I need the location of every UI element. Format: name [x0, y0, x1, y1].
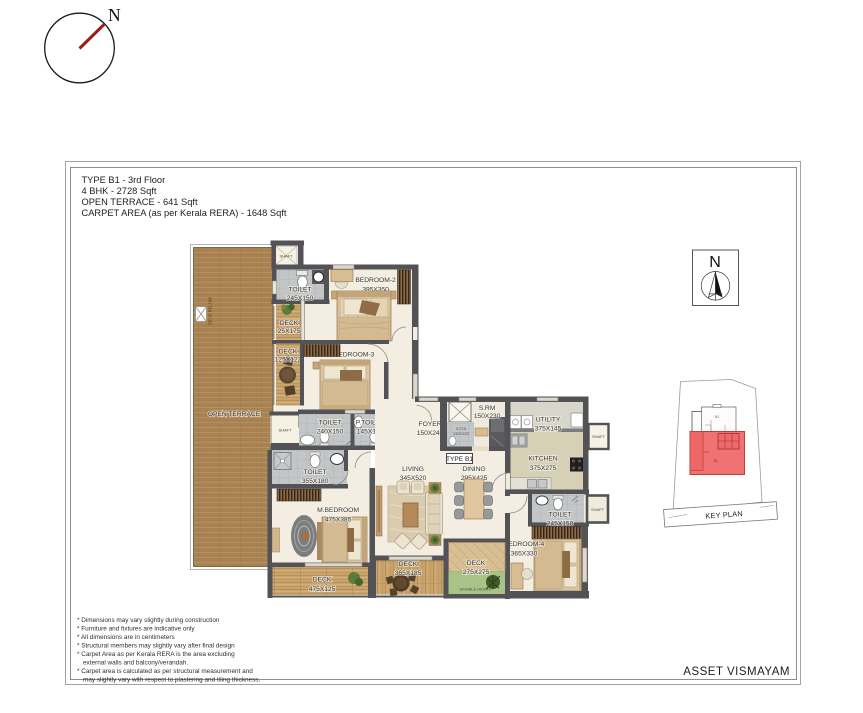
svg-text:DECK: DECK [467, 560, 486, 567]
svg-text:OPEN TERRACE - 641 Sqft: OPEN TERRACE - 641 Sqft [82, 197, 198, 207]
svg-text:SHAFT: SHAFT [592, 434, 606, 439]
svg-text:365X330: 365X330 [511, 551, 538, 558]
svg-text:may slightly vary with respect: may slightly vary with respect to plaste… [83, 677, 260, 684]
svg-text:* All dimensions are in centim: * All dimensions are in centimeters [77, 634, 175, 641]
svg-text:CARPET AREA (as per Kerala RER: CARPET AREA (as per Kerala RERA) - 1648 … [82, 208, 287, 218]
svg-text:TOILET: TOILET [548, 512, 571, 519]
svg-text:B1: B1 [714, 459, 718, 463]
svg-text:LIVING: LIVING [402, 466, 424, 473]
svg-text:N1: N1 [715, 415, 719, 419]
svg-text:DECK: DECK [279, 349, 298, 356]
svg-text:TYPE B1 - 3rd Floor: TYPE B1 - 3rd Floor [82, 175, 166, 185]
svg-text:TOILET: TOILET [303, 469, 326, 476]
svg-text:240X150: 240X150 [317, 429, 344, 436]
svg-text:DINING: DINING [462, 466, 485, 473]
svg-text:FOYER: FOYER [419, 421, 442, 428]
svg-text:275X275: 275X275 [463, 569, 490, 576]
svg-text:365X185: 365X185 [395, 570, 422, 577]
svg-text:DECK: DECK [313, 577, 332, 584]
svg-text:25X175: 25X175 [278, 328, 301, 335]
svg-text:SHAFT: SHAFT [279, 254, 293, 259]
svg-text:N: N [709, 254, 721, 271]
svg-text:475X385: 475X385 [325, 517, 352, 524]
svg-text:N: N [108, 5, 121, 25]
svg-text:TOILET: TOILET [288, 287, 311, 294]
svg-text:TYPE B1: TYPE B1 [446, 456, 473, 463]
svg-text:S.RM: S.RM [479, 405, 496, 412]
svg-text:4 BHK - 2728 Sqft: 4 BHK - 2728 Sqft [82, 186, 157, 196]
svg-text:125X122: 125X122 [275, 357, 302, 364]
svg-text:475X125: 475X125 [309, 586, 336, 593]
svg-text:M.BEDROOM: M.BEDROOM [317, 507, 359, 514]
svg-text:* Carpet Area as per Kerala RE: * Carpet Area as per Kerala RERA is the … [77, 651, 235, 658]
svg-text:355X180: 355X180 [302, 478, 329, 485]
svg-text:DECK BELOW: DECK BELOW [208, 297, 213, 325]
svg-text:245X150: 245X150 [287, 295, 314, 302]
svg-text:TOILET: TOILET [318, 420, 341, 427]
svg-text:* Furniture and fixtures are i: * Furniture and fixtures are indicative … [77, 626, 195, 633]
svg-text:* Carpet area is calculated as: * Carpet area is calculated as per struc… [77, 668, 253, 675]
svg-text:DECK: DECK [399, 561, 418, 568]
svg-text:150X230: 150X230 [474, 413, 501, 420]
svg-text:* Dimensions may vary slightly: * Dimensions may vary slightly during co… [77, 617, 220, 624]
svg-text:ASSET VISMAYAM: ASSET VISMAYAM [683, 666, 790, 678]
svg-text:DECK: DECK [280, 320, 299, 327]
svg-text:* Structural members may sligh: * Structural members may slightly vary a… [77, 643, 235, 650]
svg-text:375X145: 375X145 [535, 426, 562, 433]
svg-text:BEDROOM-2: BEDROOM-2 [355, 277, 396, 284]
svg-text:KITCHEN: KITCHEN [528, 456, 557, 463]
svg-text:OPEN TERRACE: OPEN TERRACE [208, 411, 261, 418]
svg-text:external walls and balcony/ver: external walls and balcony/verandah. [83, 660, 188, 667]
svg-text:SHAFT: SHAFT [278, 428, 292, 433]
svg-text:110X120: 110X120 [453, 431, 469, 436]
svg-text:UTILITY: UTILITY [536, 417, 561, 424]
svg-text:375X275: 375X275 [530, 465, 557, 472]
svg-text:150X240: 150X240 [417, 430, 444, 437]
svg-text:SHAFT: SHAFT [591, 507, 605, 512]
